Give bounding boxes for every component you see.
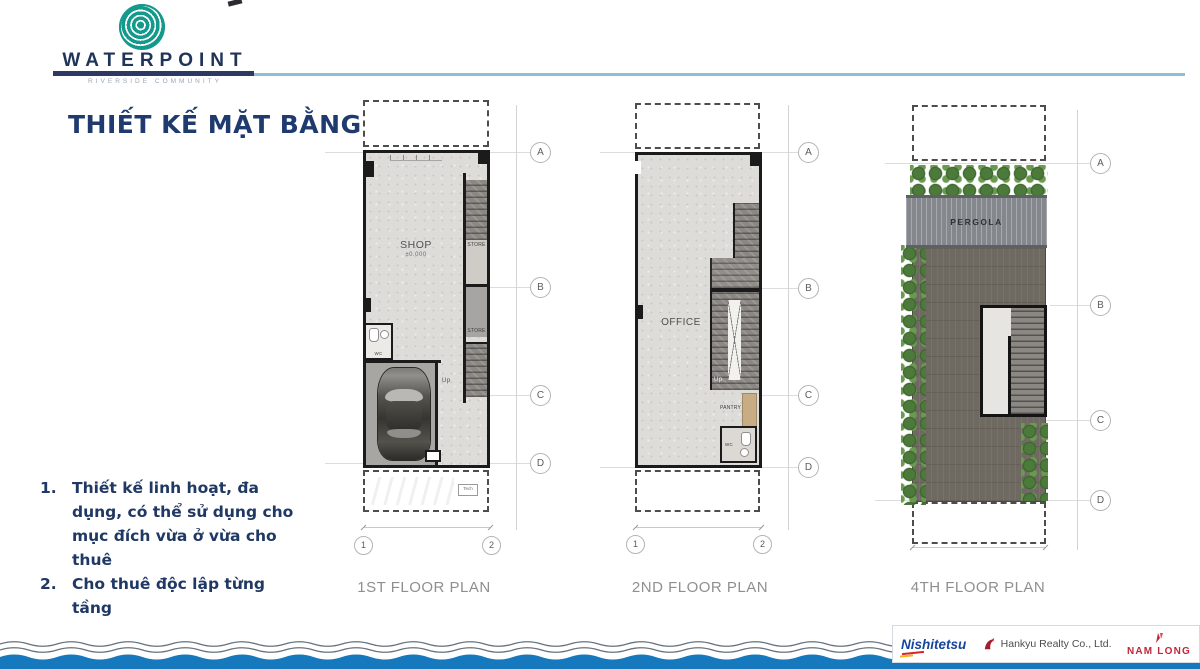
- top-edge-mark: [228, 0, 243, 7]
- grid-marker-a: A: [1090, 153, 1111, 174]
- note-number: 2.: [40, 572, 72, 620]
- plot-boundary-rear: [912, 502, 1046, 544]
- wall-post: [637, 305, 643, 319]
- pergola: PERGOLA: [906, 195, 1047, 248]
- note-text: Cho thuê độc lập từng tầng: [72, 572, 310, 620]
- note-item-1: 1. Thiết kế linh hoạt, đa dụng, có thể s…: [40, 476, 320, 572]
- plan-4-title: 4TH FLOOR PLAN: [878, 579, 1078, 596]
- note-number: 1.: [40, 476, 72, 572]
- brand-subtitle: RIVERSIDE COMMUNITY: [55, 78, 255, 85]
- grid-marker-c: C: [798, 385, 819, 406]
- sink-icon: [380, 330, 389, 339]
- stair-run-upper: [466, 180, 487, 240]
- planter-hedge-left: [901, 245, 926, 505]
- grid-marker-d: D: [530, 453, 551, 474]
- store-label: STORE: [466, 242, 487, 248]
- brand-divider: [53, 71, 254, 76]
- dimension-chain: [516, 105, 517, 530]
- grid-line-a: [885, 163, 1090, 164]
- note-item-2: 2. Cho thuê độc lập từng tầng: [40, 572, 320, 620]
- plan-2-title: 2ND FLOOR PLAN: [600, 579, 800, 596]
- plot-boundary-front: [363, 100, 489, 147]
- partner-logos-panel: Nishitetsu Hankyu Realty Co., Ltd. NAM L…: [892, 625, 1200, 663]
- note-text: Thiết kế linh hoạt, đa dụng, có thể sử d…: [72, 476, 310, 572]
- stair-run: [1011, 308, 1044, 414]
- dimension-line: [635, 527, 762, 528]
- planter-hedge-right: [1021, 423, 1048, 501]
- wc-label: WC: [725, 442, 733, 447]
- nishitetsu-logo: Nishitetsu: [901, 637, 966, 652]
- floor-plan-2: Up OFFICE PANTRY WC A B C D 1 2: [612, 95, 847, 575]
- pantry-counter: [742, 393, 757, 427]
- grid-line-b: [1050, 305, 1090, 306]
- tech-box: Tech: [458, 484, 478, 496]
- dimension-line: [912, 547, 1046, 548]
- plot-boundary-rear: [635, 470, 760, 512]
- storefront-glazing: [390, 155, 442, 161]
- shop-label: SHOP: [384, 239, 448, 251]
- wc-label: WC: [366, 351, 391, 356]
- entry-door: [635, 161, 641, 174]
- column-marker-2: 2: [482, 536, 501, 555]
- grid-marker-a: A: [530, 142, 551, 163]
- grid-marker-c: C: [530, 385, 551, 406]
- office-label: OFFICE: [646, 317, 716, 328]
- grid-marker-d: D: [1090, 490, 1111, 511]
- waterpoint-ripple-icon: [119, 4, 165, 50]
- dimension-chain: [788, 105, 789, 530]
- room-store-lower: STORE: [466, 287, 487, 337]
- plot-boundary-front: [635, 103, 760, 149]
- hankyu-logo-icon: [982, 637, 997, 652]
- wall-post: [750, 154, 759, 166]
- notes-list: 1. Thiết kế linh hoạt, đa dụng, có thể s…: [40, 476, 320, 620]
- dimension-chain: [1077, 110, 1078, 550]
- shop-level-label: ±0.000: [384, 252, 448, 258]
- planter-hedge-top: [910, 165, 1048, 197]
- floor-plan-4: PERGOLA A B C D: [885, 95, 1135, 575]
- building-outline: Up OFFICE PANTRY WC: [635, 152, 762, 468]
- hankyu-logo: Hankyu Realty Co., Ltd.: [982, 637, 1112, 652]
- grid-marker-d: D: [798, 457, 819, 478]
- wall-post: [365, 161, 374, 177]
- toilet-icon: [369, 328, 379, 342]
- store-label: STORE: [466, 328, 487, 334]
- hankyu-wordmark: Hankyu Realty Co., Ltd.: [1001, 638, 1112, 650]
- sink-icon: [740, 448, 749, 457]
- yard-watermark: [369, 477, 454, 505]
- plot-boundary-rear: Tech: [363, 470, 489, 512]
- garage-door: [425, 450, 441, 462]
- car-top-view: [378, 368, 430, 460]
- dimension-line: [363, 527, 491, 528]
- column-marker-1: 1: [626, 535, 645, 554]
- up-label: Up: [714, 377, 723, 383]
- room-store-upper: STORE: [466, 240, 487, 284]
- floor-plan-1: STORE STORE Up SHOP ±0.000 WC: [340, 95, 575, 575]
- wall-post: [478, 152, 487, 164]
- building-outline: STORE STORE Up SHOP ±0.000 WC: [363, 150, 490, 468]
- grid-marker-a: A: [798, 142, 819, 163]
- namlong-logo-icon: [1152, 631, 1166, 645]
- stair-wall: [1008, 336, 1011, 414]
- pantry-label: PANTRY: [720, 405, 741, 411]
- stair-flight: [728, 300, 741, 380]
- column-marker-1: 1: [354, 536, 373, 555]
- namlong-logo: NAM LONG: [1127, 631, 1191, 657]
- grid-marker-c: C: [1090, 410, 1111, 431]
- stair-run-upper: [733, 203, 759, 258]
- stair-run-lower: [466, 342, 487, 397]
- car-roof: [386, 401, 422, 430]
- toilet-icon: [741, 432, 751, 446]
- column-marker-2: 2: [753, 535, 772, 554]
- brand-name: WATERPOINT: [55, 50, 255, 72]
- slide: WATERPOINT RIVERSIDE COMMUNITY THIẾT KẾ …: [0, 0, 1200, 669]
- nishitetsu-wordmark: Nishitetsu: [901, 637, 966, 652]
- stair-landing: [710, 258, 759, 288]
- room-wc: WC: [366, 323, 393, 360]
- up-label: Up: [442, 378, 451, 384]
- plan-1-title: 1ST FLOOR PLAN: [324, 579, 524, 596]
- page-title: THIẾT KẾ MẶT BẰNG: [68, 110, 362, 139]
- stair-penthouse: [980, 305, 1047, 417]
- header-rule: [254, 73, 1185, 76]
- grid-marker-b: B: [1090, 295, 1111, 316]
- wall-post: [365, 298, 371, 312]
- namlong-wordmark: NAM LONG: [1127, 646, 1191, 657]
- grid-marker-b: B: [530, 277, 551, 298]
- room-wc: WC: [720, 426, 757, 463]
- grid-marker-b: B: [798, 278, 819, 299]
- plot-boundary-front: [912, 105, 1046, 161]
